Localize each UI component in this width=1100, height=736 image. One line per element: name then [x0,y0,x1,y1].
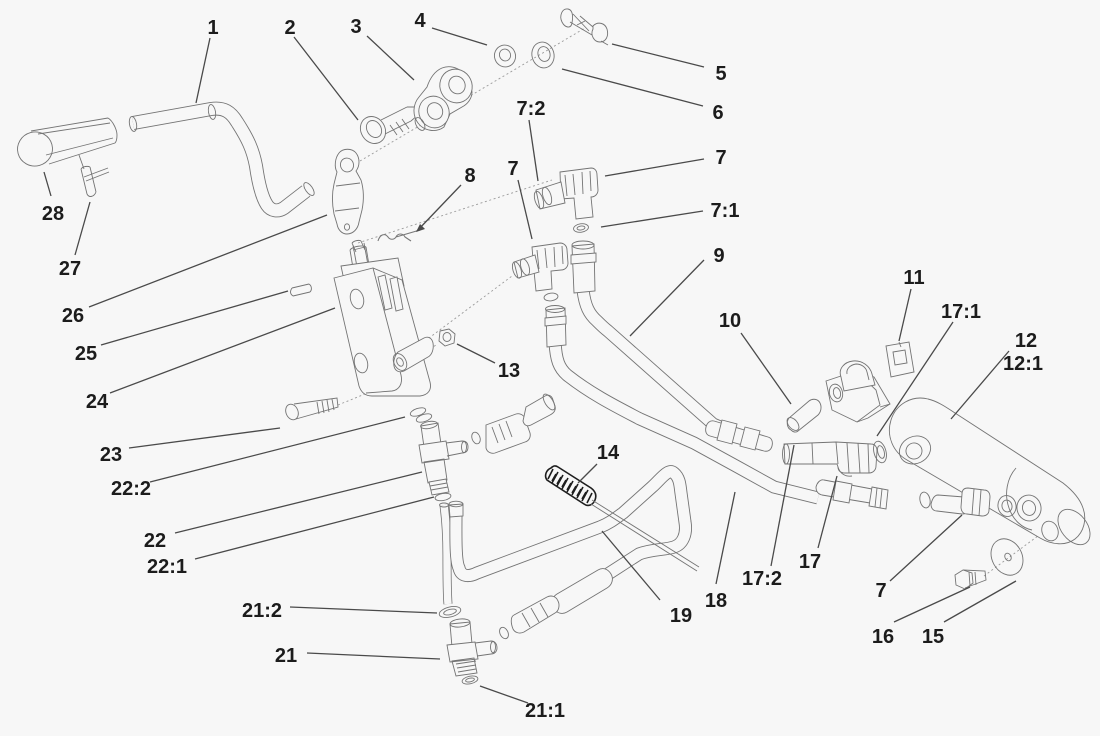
svg-text:6: 6 [712,102,723,124]
svg-text:7:1: 7:1 [711,200,740,222]
svg-text:7: 7 [715,147,726,169]
svg-text:24: 24 [86,391,109,413]
svg-text:28: 28 [42,203,64,225]
svg-text:12: 12 [1015,330,1037,352]
svg-text:23: 23 [100,444,122,466]
svg-text:22:1: 22:1 [147,556,187,578]
svg-text:16: 16 [872,626,894,648]
svg-text:2: 2 [284,17,295,39]
svg-text:26: 26 [62,305,84,327]
svg-text:21:1: 21:1 [525,700,565,722]
svg-text:3: 3 [350,16,361,38]
svg-text:17:1: 17:1 [941,301,981,323]
svg-text:13: 13 [498,360,520,382]
svg-text:1: 1 [207,17,218,39]
svg-text:17: 17 [799,551,821,573]
svg-text:21: 21 [275,645,297,667]
svg-text:14: 14 [597,442,620,464]
svg-text:21:2: 21:2 [242,600,282,622]
svg-text:19: 19 [670,605,692,627]
svg-text:17:2: 17:2 [742,568,782,590]
svg-text:27: 27 [59,258,81,280]
svg-text:10: 10 [719,310,741,332]
svg-text:15: 15 [922,626,944,648]
svg-text:7:2: 7:2 [517,98,546,120]
svg-text:9: 9 [713,245,724,267]
svg-text:4: 4 [414,10,426,32]
svg-text:18: 18 [705,590,727,612]
svg-text:5: 5 [715,63,726,85]
svg-text:25: 25 [75,343,97,365]
svg-text:22: 22 [144,530,166,552]
svg-text:22:2: 22:2 [111,478,151,500]
svg-text:12:1: 12:1 [1003,353,1043,375]
svg-text:11: 11 [903,267,924,289]
svg-text:7: 7 [875,580,886,602]
svg-text:7: 7 [507,158,518,180]
svg-text:8: 8 [464,165,475,187]
